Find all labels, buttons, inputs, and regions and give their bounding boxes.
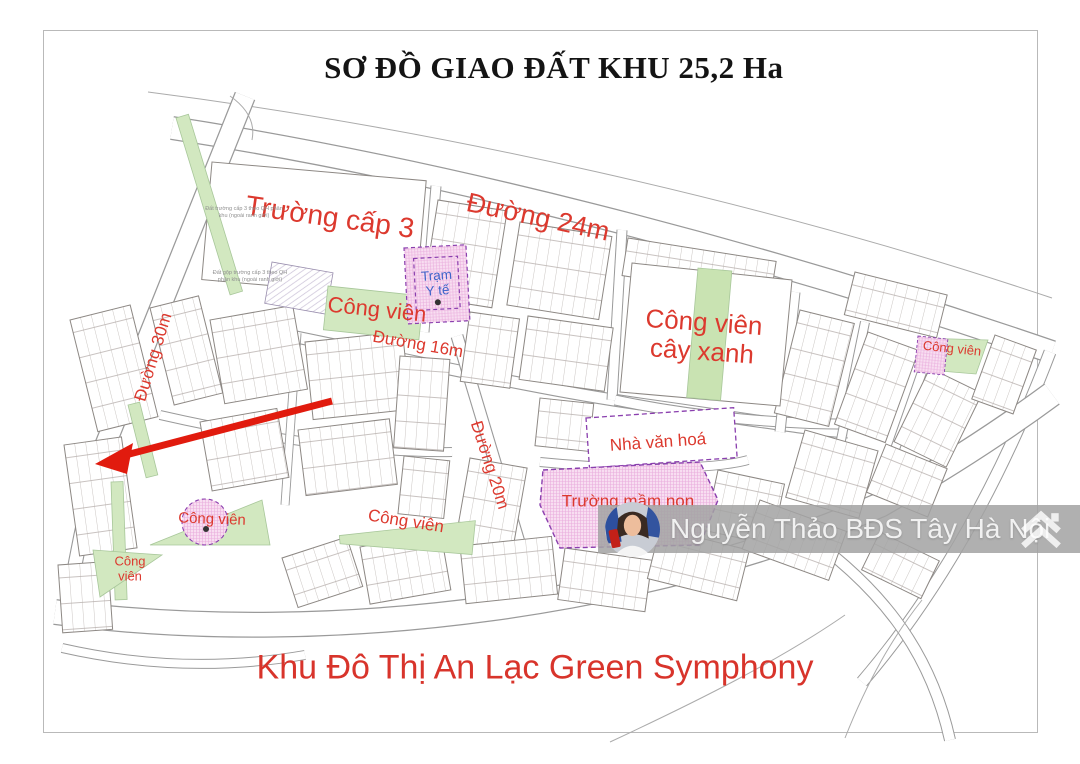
land-allocation-map-image: SƠ ĐỒ GIAO ĐẤT KHU 25,2 Ha	[0, 0, 1080, 764]
double-chevron-house-icon	[1014, 502, 1068, 556]
project-name: Khu Đô Thị An Lạc Green Symphony	[257, 649, 814, 688]
agent-portrait	[605, 502, 660, 557]
label-medical-station: Trạm Y tế	[420, 267, 453, 299]
watermark-name: Nguyễn Thảo BĐS Tây Hà Nội	[670, 513, 1050, 545]
label-park-west: Công viên	[107, 554, 153, 583]
avatar	[605, 502, 660, 557]
label-tree-park: Công viên cây xanh	[643, 304, 764, 370]
label-note-bottom: Đất gộp trường cấp 3 theo QH phân khu (n…	[210, 270, 290, 284]
label-park-southwest: Công viên	[178, 510, 246, 529]
label-note-top: Đất trường cấp 3 theo QH phân khu (ngoài…	[204, 206, 284, 220]
